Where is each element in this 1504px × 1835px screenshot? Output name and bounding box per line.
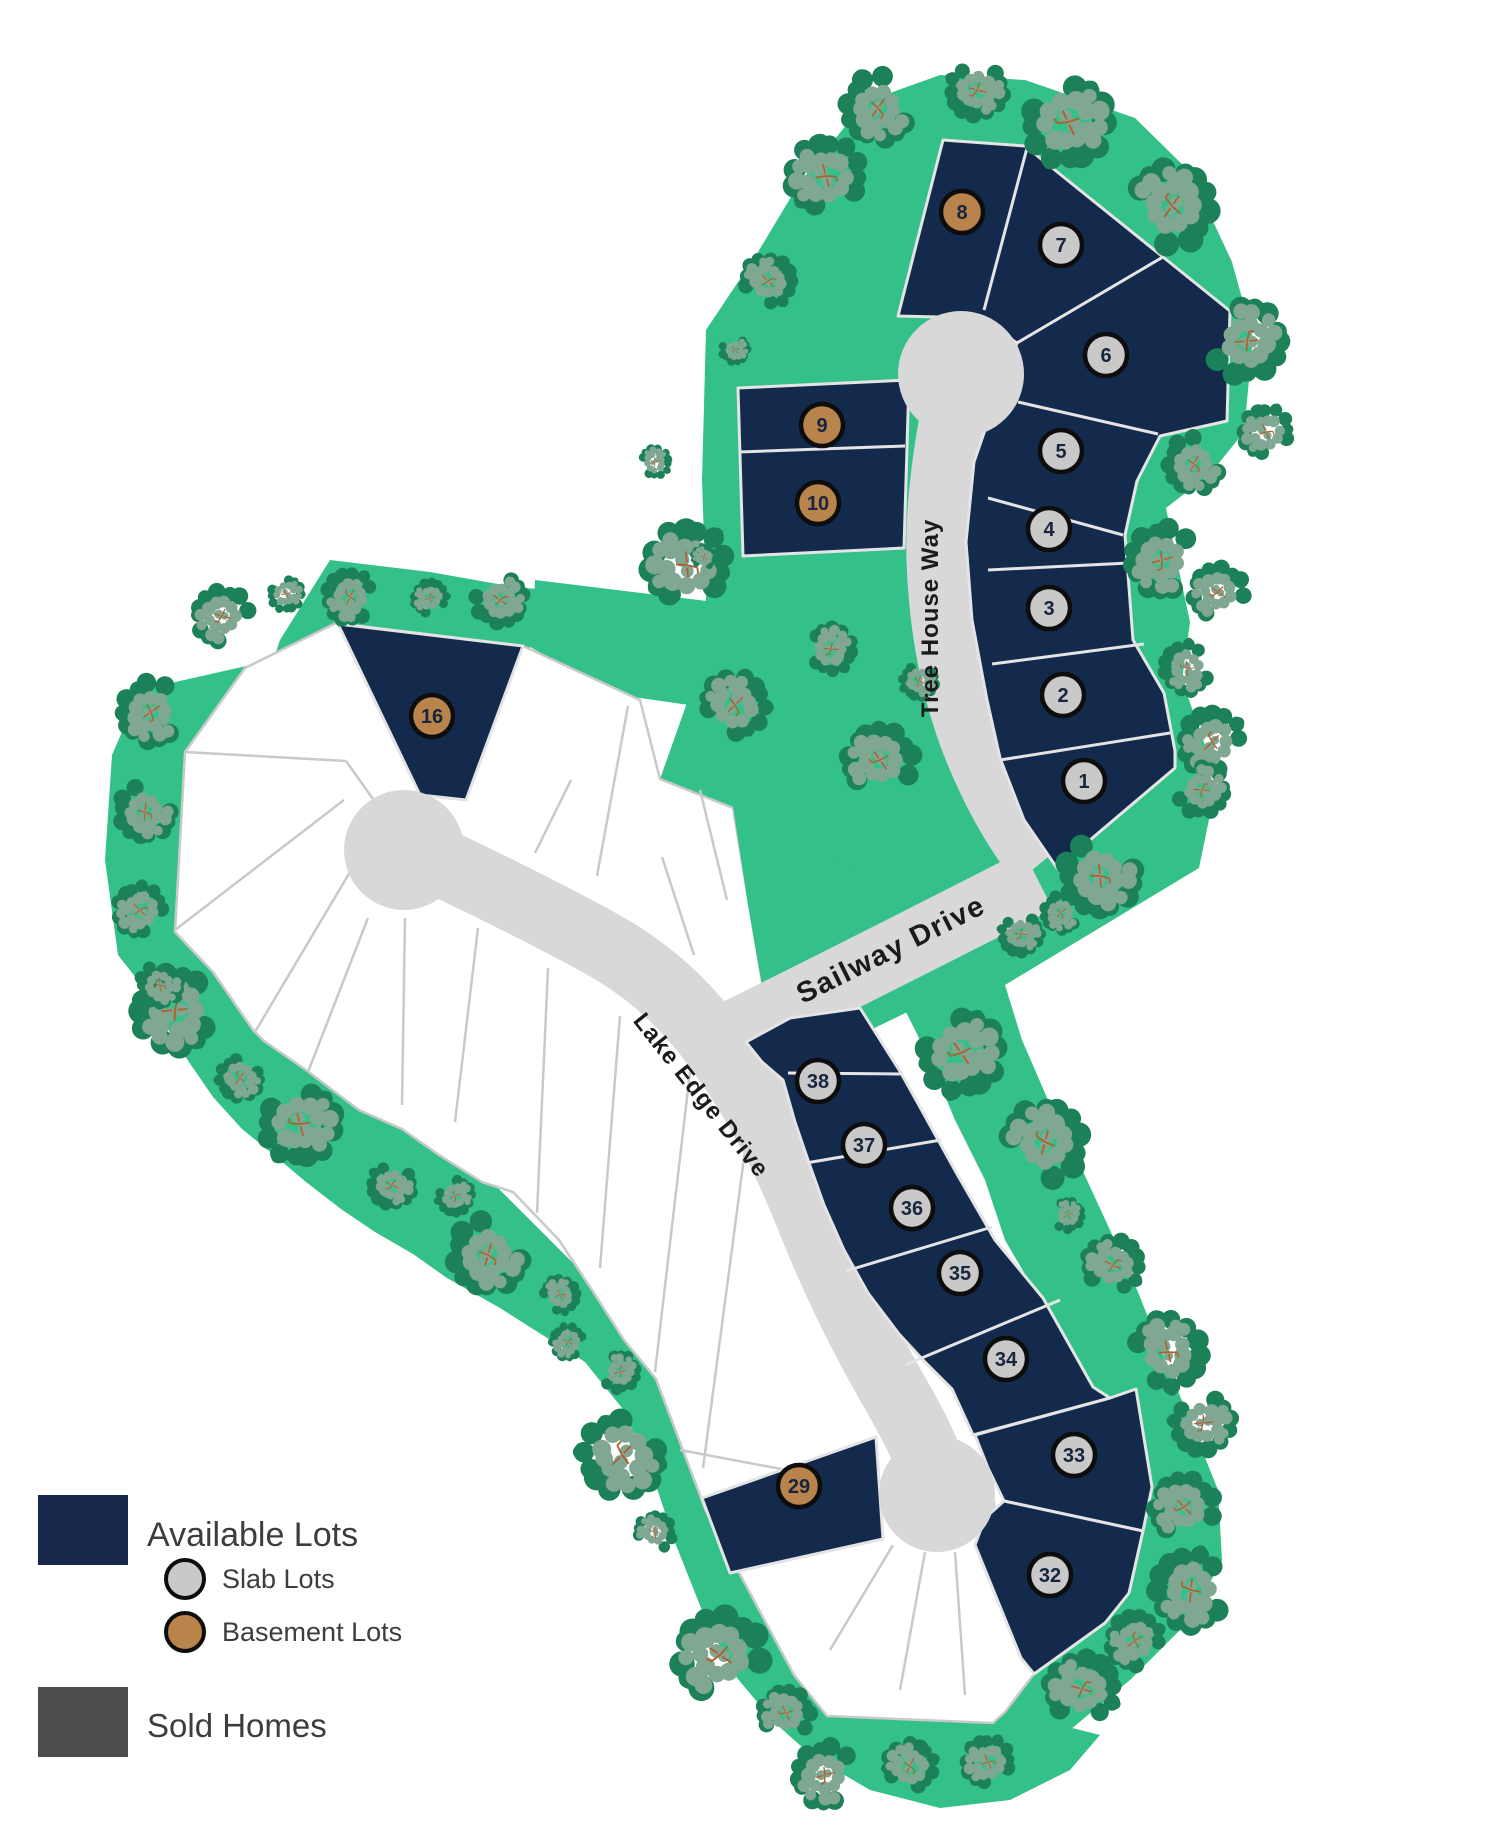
svg-text:5: 5: [1055, 441, 1066, 463]
svg-text:36: 36: [901, 1198, 923, 1220]
svg-text:10: 10: [807, 493, 829, 515]
svg-text:6: 6: [1100, 345, 1111, 367]
svg-text:34: 34: [995, 1349, 1018, 1371]
svg-text:35: 35: [949, 1263, 971, 1285]
svg-text:7: 7: [1055, 235, 1066, 257]
svg-text:29: 29: [788, 1476, 810, 1498]
svg-text:Available Lots: Available Lots: [147, 1516, 358, 1554]
svg-text:1: 1: [1078, 771, 1089, 793]
svg-text:16: 16: [421, 706, 443, 728]
svg-text:8: 8: [956, 202, 967, 224]
svg-text:Basement Lots: Basement Lots: [222, 1617, 402, 1647]
svg-text:9: 9: [816, 415, 827, 437]
svg-text:33: 33: [1063, 1445, 1085, 1467]
svg-text:Sold Homes: Sold Homes: [147, 1707, 327, 1744]
svg-text:38: 38: [807, 1071, 829, 1093]
svg-text:32: 32: [1039, 1565, 1061, 1587]
svg-text:Slab Lots: Slab Lots: [222, 1564, 335, 1594]
svg-text:Tree House Way: Tree House Way: [917, 519, 944, 718]
svg-text:4: 4: [1043, 519, 1055, 541]
svg-text:3: 3: [1043, 598, 1054, 620]
svg-text:2: 2: [1057, 685, 1068, 707]
svg-text:37: 37: [853, 1135, 875, 1157]
